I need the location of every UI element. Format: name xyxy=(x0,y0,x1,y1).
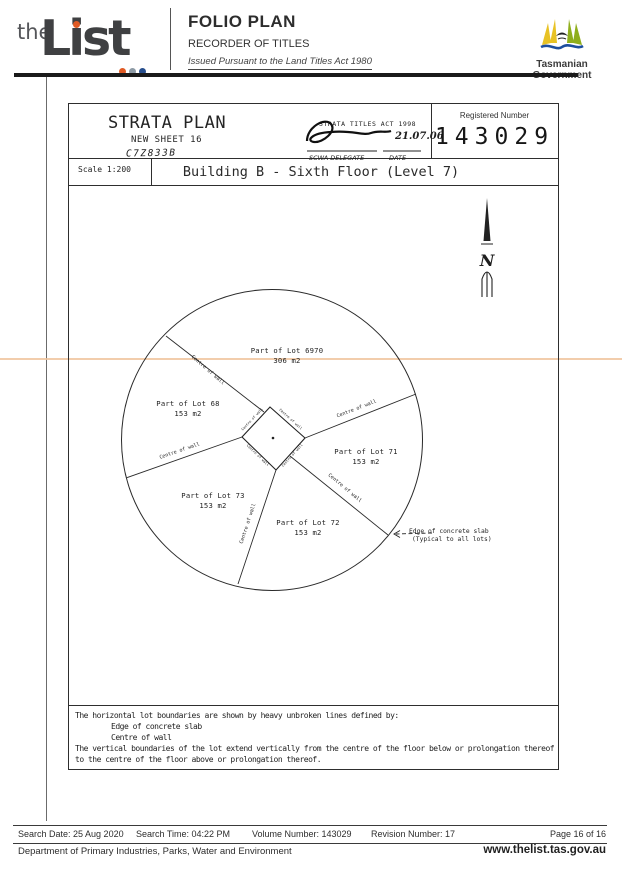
note-line-4: The vertical boundaries of the lot exten… xyxy=(75,744,554,753)
sheet-title: Building B - Sixth Floor (Level 7) xyxy=(161,164,481,180)
footer-rule-top xyxy=(13,825,607,826)
wall-label-bottom: Centre of wall xyxy=(239,503,258,545)
wall-label-lower-left: Centre of wall xyxy=(159,441,201,460)
logo-i-dot xyxy=(73,21,80,28)
header-rule xyxy=(14,73,578,77)
edge-of-slab-callout: Edge of concrete slab (Typical to all lo… xyxy=(394,528,492,543)
wall-label-lower-right: Centre of wall xyxy=(327,472,363,504)
approval-stamp: STRATA TITLES ACT 1998 21.07.06 SCWA DEL… xyxy=(301,113,446,165)
scale-cell-divider xyxy=(151,158,152,185)
tasmanian-government-emblem-icon xyxy=(537,18,587,54)
logo-list-text: List xyxy=(40,10,129,67)
footer-page-number: Page 16 of 16 xyxy=(550,829,606,839)
lot-6970-name: Part of Lot 6970 xyxy=(251,346,323,355)
lot-68-area: 153 m2 xyxy=(174,409,201,418)
footer-department: Department of Primary Industries, Parks,… xyxy=(18,846,292,857)
folio-plan-title: FOLIO PLAN xyxy=(188,12,296,32)
footer-search-time: Search Time: 04:22 PM xyxy=(136,829,230,839)
footer-search-date: Search Date: 25 Aug 2020 xyxy=(18,829,124,839)
lot-72-area: 153 m2 xyxy=(294,528,321,537)
issued-pursuant-note: Issued Pursuant to the Land Titles Act 1… xyxy=(188,56,372,70)
north-letter: N xyxy=(479,251,496,270)
header-divider xyxy=(170,8,171,70)
handwritten-plan-ref: C7Z833B xyxy=(126,148,177,160)
gov-name-line1: Tasmanian xyxy=(520,59,604,70)
logo-dots-icon xyxy=(119,62,149,80)
lot-6970-area: 306 m2 xyxy=(273,356,300,365)
wall-label-upper-left: Centre of wall xyxy=(190,354,226,386)
note-line-3: Centre of wall xyxy=(111,733,171,742)
note-line-5: to the centre of the floor above or prol… xyxy=(75,755,321,764)
note-line-1: The horizontal lot boundaries are shown … xyxy=(75,711,399,720)
footer-website: www.thelist.tas.gov.au xyxy=(483,844,606,856)
lot-71-name: Part of Lot 71 xyxy=(334,447,397,456)
edge-note-line2: (Typical to all lots) xyxy=(412,536,492,543)
scanned-page-edge xyxy=(46,77,47,821)
note-line-2: Edge of concrete slab xyxy=(111,722,202,731)
registered-number-label: Registered Number xyxy=(431,111,558,120)
new-sheet-label: NEW SHEET 16 xyxy=(131,135,202,145)
lot-73-area: 153 m2 xyxy=(199,501,226,510)
footer-revision-number: Revision Number: 17 xyxy=(371,829,455,839)
core-centre-dot xyxy=(272,437,275,440)
footer-volume-number: Volume Number: 143029 xyxy=(252,829,352,839)
strata-plan-heading: STRATA PLAN xyxy=(108,113,226,133)
strata-plan-drawing: N Centre of wall Centre of wall Centre o… xyxy=(68,185,557,705)
edge-note-line1: Edge of concrete slab xyxy=(409,528,489,535)
north-arrow-icon: N xyxy=(479,198,496,297)
wall-label-right: Centre of wall xyxy=(336,399,378,420)
stamp-date-label: DATE xyxy=(389,154,407,162)
registered-number-value: 143029 xyxy=(431,124,558,150)
lot-73-name: Part of Lot 73 xyxy=(181,491,244,500)
stamp-delegate-label: SCWA DELEGATE xyxy=(309,154,365,162)
tasmanian-government-logo: Tasmanian Government xyxy=(520,18,604,81)
lot-71-area: 153 m2 xyxy=(352,457,379,466)
recorder-of-titles-subtitle: RECORDER OF TITLES xyxy=(188,38,309,50)
scale-label: Scale 1:200 xyxy=(78,165,131,174)
lot-72-name: Part of Lot 72 xyxy=(276,518,339,527)
lot-68-name: Part of Lot 68 xyxy=(156,399,219,408)
